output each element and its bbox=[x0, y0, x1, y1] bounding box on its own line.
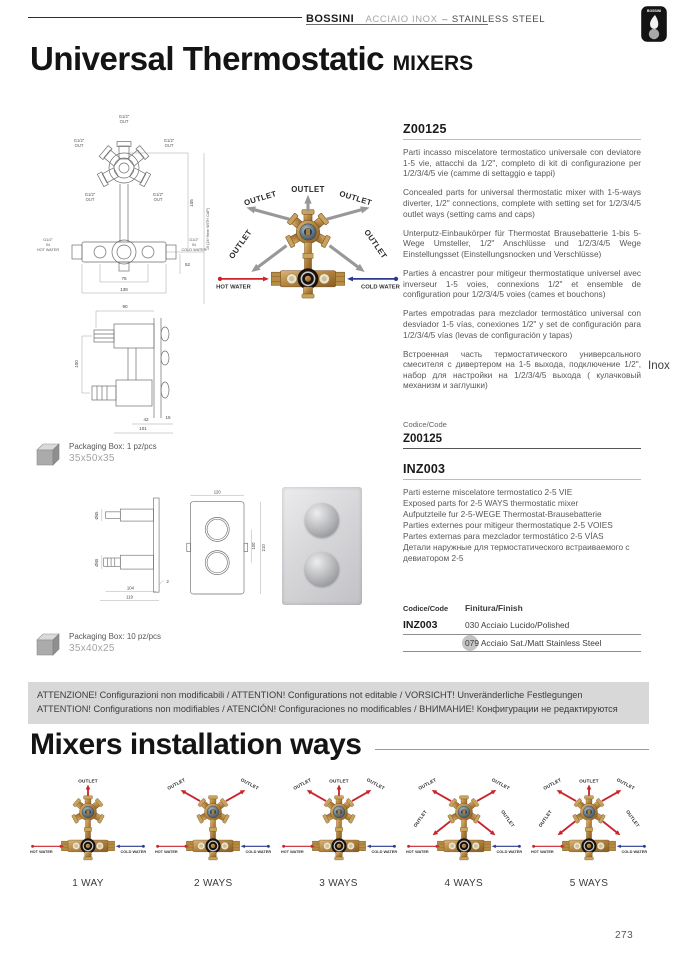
outlet-label: OUTLET bbox=[500, 809, 515, 828]
product-descriptions: Parti esterne miscelatore termostatico 2… bbox=[403, 487, 641, 564]
svg-text:Ø45: Ø45 bbox=[94, 511, 99, 520]
mixer-valve-figure: OUTLETHOT WATERCOLD WATER bbox=[28, 778, 148, 874]
thermostatic-valve-illustration bbox=[187, 796, 240, 860]
technical-drawing-z00125: G1/2" OUT G1/2" OUT G1/2" OUT G1/2" OUT … bbox=[32, 106, 217, 436]
finish-table-row: INZ003 030 Acciaio Lucido/Polished bbox=[403, 616, 641, 635]
svg-text:COLD WATER: COLD WATER bbox=[182, 248, 207, 252]
description-line: Partes externas para mezclador termostát… bbox=[403, 531, 641, 542]
packaging-box-icon bbox=[35, 630, 61, 656]
mixer-valve-figure: OUTLETOUTLETOUTLETOUTLETOUTLETHOT WATERC… bbox=[529, 778, 649, 874]
outlet-label: OUTLET bbox=[329, 779, 349, 784]
code-value: Z00125 bbox=[403, 433, 641, 449]
description-line: Exposed parts for 2-5 WAYS thermostatic … bbox=[403, 498, 641, 509]
installation-title: Mixers installation ways bbox=[30, 728, 361, 762]
installation-ways-row: OUTLETHOT WATERCOLD WATER1 WAYOUTLETOUTL… bbox=[28, 778, 649, 889]
outlet-label: OUTLET bbox=[227, 228, 254, 261]
outlet-label: OUTLET bbox=[78, 779, 98, 784]
svg-text:76: 76 bbox=[121, 276, 127, 281]
outlet-label: OUTLET bbox=[491, 778, 511, 791]
finish-row-finish: 030 Acciaio Lucido/Polished bbox=[465, 620, 641, 630]
product-inz003-section: INZ003 Parti esterne miscelatore termost… bbox=[403, 462, 641, 564]
way-label: 1 WAY bbox=[28, 878, 148, 889]
attention-banner: ATTENZIONE! Configurazioni non modificab… bbox=[28, 682, 649, 724]
packaging-box-icon bbox=[35, 440, 61, 466]
packaging-label: Packaging Box: 1 pz/pcs bbox=[69, 440, 157, 453]
svg-text:105: 105 bbox=[189, 199, 194, 207]
product-photo-inz003 bbox=[282, 487, 362, 605]
attention-line-1: ATTENZIONE! Configurazioni non modificab… bbox=[37, 689, 640, 703]
packaging-size: 35x50x35 bbox=[69, 453, 157, 464]
svg-text:2: 2 bbox=[166, 579, 169, 584]
thermostatic-valve-illustration bbox=[562, 796, 615, 860]
code-header: Codice/Code bbox=[403, 604, 465, 613]
svg-text:42: 42 bbox=[143, 417, 149, 422]
product-descriptions: Parti incasso miscelatore termostatico u… bbox=[403, 147, 641, 391]
svg-text:HOT WATER: HOT WATER bbox=[37, 248, 60, 252]
code-label: Codice/Code bbox=[403, 420, 641, 429]
outlet-label: OUTLET bbox=[625, 809, 640, 828]
outlet-diagram: OUTLETOUTLETOUTLETOUTLETOUTLETHOT WATERC… bbox=[210, 186, 406, 362]
svg-text:210: 210 bbox=[261, 544, 266, 552]
outlet-label: OUTLET bbox=[291, 186, 325, 194]
finish-table-header: Codice/Code Finitura/Finish bbox=[403, 600, 641, 616]
cold-water-label: COLD WATER bbox=[246, 849, 272, 854]
installation-way: OUTLETHOT WATERCOLD WATER1 WAY bbox=[28, 778, 148, 889]
packaging-label: Packaging Box: 10 pz/pcs bbox=[69, 630, 161, 643]
outlet-label: OUTLET bbox=[240, 778, 260, 791]
outlet-label: OUTLET bbox=[243, 189, 278, 207]
section-side-label: Inox bbox=[648, 360, 670, 372]
front-view-drawing bbox=[72, 142, 176, 272]
finish-row-code: INZ003 bbox=[403, 619, 465, 631]
hot-water-label: HOT WATER bbox=[531, 849, 554, 854]
installation-way: OUTLETOUTLETOUTLETHOT WATERCOLD WATER3 W… bbox=[279, 778, 399, 889]
thermostatic-valve-illustration bbox=[437, 796, 490, 860]
attention-line-2: ATTENTION! Configurations non modifiable… bbox=[37, 703, 640, 717]
svg-text:52: 52 bbox=[185, 262, 191, 267]
description-line: Детали наружные для термостатического вс… bbox=[403, 542, 641, 564]
svg-text:OUT: OUT bbox=[154, 197, 163, 202]
svg-text:120: 120 bbox=[214, 489, 222, 494]
hot-water-label: HOT WATER bbox=[280, 849, 303, 854]
hot-water-label: HOT WATER bbox=[155, 849, 178, 854]
title-rule bbox=[375, 749, 649, 750]
description-paragraph: Concealed parts for universal thermostat… bbox=[403, 187, 641, 219]
svg-text:15: 15 bbox=[165, 415, 171, 420]
finish-row-finish: 079 Acciaio Sat./Matt Stainless Steel bbox=[465, 638, 601, 648]
diverter-knob bbox=[305, 503, 339, 537]
outlet-label: OUTLET bbox=[365, 778, 385, 791]
header-rule bbox=[28, 17, 302, 18]
product-code-heading: Z00125 bbox=[403, 122, 641, 140]
finish-header: Finitura/Finish bbox=[465, 603, 641, 613]
product-code-heading: INZ003 bbox=[403, 462, 641, 480]
outlet-label: OUTLET bbox=[362, 228, 389, 261]
cold-water-label: COLD WATER bbox=[361, 285, 401, 291]
installation-title-row: Mixers installation ways bbox=[30, 728, 649, 762]
installation-way: OUTLETOUTLETHOT WATERCOLD WATER2 WAYS bbox=[153, 778, 273, 889]
thermostatic-valve-illustration bbox=[271, 210, 344, 298]
svg-text:G1/2": G1/2" bbox=[43, 238, 53, 242]
way-label: 4 WAYS bbox=[404, 878, 524, 889]
outlet-label: OUTLET bbox=[417, 778, 437, 791]
description-line: Parties externes pour mitigeur thermosta… bbox=[403, 520, 641, 531]
svg-text:101: 101 bbox=[139, 426, 147, 431]
svg-text:OUT: OUT bbox=[75, 143, 84, 148]
installation-way: OUTLETOUTLETOUTLETOUTLETOUTLETHOT WATERC… bbox=[529, 778, 649, 889]
hot-water-label: HOT WATER bbox=[216, 285, 251, 291]
svg-text:OUT: OUT bbox=[120, 119, 129, 124]
outlet-label: OUTLET bbox=[338, 189, 373, 207]
svg-text:100: 100 bbox=[74, 360, 79, 368]
technical-drawing-inz003: Ø45 Ø45 2 104 119 120 100 210 bbox=[52, 482, 268, 610]
svg-text:IN: IN bbox=[46, 243, 50, 247]
outlet-label: OUTLET bbox=[538, 809, 553, 828]
logo-circle-shape bbox=[649, 29, 659, 39]
mixer-valve-figure: OUTLETOUTLETHOT WATERCOLD WATER bbox=[153, 778, 273, 874]
outlet-label: OUTLET bbox=[579, 779, 599, 784]
svg-text:100: 100 bbox=[251, 542, 256, 550]
svg-text:G1/2": G1/2" bbox=[189, 238, 199, 242]
mixer-valve-figure: OUTLETOUTLETOUTLETOUTLETHOT WATERCOLD WA… bbox=[404, 778, 524, 874]
svg-text:OUT: OUT bbox=[86, 197, 95, 202]
bossini-logo: BOSSINI bbox=[641, 6, 667, 47]
thermostatic-valve-illustration bbox=[312, 796, 365, 860]
page-title-suffix: MIXERS bbox=[393, 52, 474, 75]
bossini-logo-icon: BOSSINI bbox=[641, 6, 667, 42]
description-paragraph: Parti incasso miscelatore termostatico u… bbox=[403, 147, 641, 179]
hot-water-label: HOT WATER bbox=[406, 849, 429, 854]
svg-text:IN: IN bbox=[192, 243, 196, 247]
packaging-info-inz003: Packaging Box: 10 pz/pcs 35x40x25 bbox=[35, 630, 161, 656]
page-title: Universal Thermostatic MIXERS bbox=[30, 40, 473, 78]
outlet-label: OUTLET bbox=[616, 778, 636, 791]
installation-way: OUTLETOUTLETOUTLETOUTLETHOT WATERCOLD WA… bbox=[404, 778, 524, 889]
cold-water-label: COLD WATER bbox=[496, 849, 522, 854]
svg-text:104: 104 bbox=[127, 585, 135, 590]
cold-water-label: COLD WATER bbox=[621, 849, 647, 854]
cold-water-label: COLD WATER bbox=[371, 849, 397, 854]
dimension-lines-front bbox=[82, 153, 204, 304]
finish-table-row: 079 Acciaio Sat./Matt Stainless Steel bbox=[403, 635, 641, 652]
finish-table: Codice/Code Finitura/Finish INZ003 030 A… bbox=[403, 600, 641, 652]
page-title-main: Universal Thermostatic bbox=[30, 40, 384, 77]
description-line: Parti esterne miscelatore termostatico 2… bbox=[403, 487, 641, 498]
way-label: 2 WAYS bbox=[153, 878, 273, 889]
description-paragraph: Встроенная часть термостатического униве… bbox=[403, 349, 641, 391]
thermostatic-valve-illustration bbox=[61, 796, 114, 860]
description-paragraph: Parties à encastrer pour mitigeur thermo… bbox=[403, 268, 641, 300]
outlet-label: OUTLET bbox=[167, 778, 187, 791]
mixer-valve-figure: OUTLETOUTLETOUTLETHOT WATERCOLD WATER bbox=[279, 778, 399, 874]
packaging-info-z00125: Packaging Box: 1 pz/pcs 35x50x35 bbox=[35, 440, 157, 466]
code-block: Codice/Code Z00125 bbox=[403, 420, 641, 449]
outlet-label: OUTLET bbox=[412, 809, 427, 828]
hot-water-label: HOT WATER bbox=[30, 849, 53, 854]
outlet-label: OUTLET bbox=[542, 778, 562, 791]
page-number: 273 bbox=[615, 930, 633, 941]
header-underline bbox=[306, 24, 488, 25]
svg-text:Ø45: Ø45 bbox=[94, 558, 99, 567]
description-paragraph: Unterputz-Einbaukörper für Thermostat Br… bbox=[403, 228, 641, 260]
product-z00125-section: Z00125 Parti incasso miscelatore termost… bbox=[403, 122, 641, 400]
outlet-label: OUTLET bbox=[292, 778, 312, 791]
side-view-drawing bbox=[92, 318, 169, 418]
svg-text:90: 90 bbox=[122, 304, 128, 309]
description-line: Aufputzteile fur 2-5-WEGE Thermostat-Bra… bbox=[403, 509, 641, 520]
svg-text:OUT: OUT bbox=[165, 143, 174, 148]
logo-text: BOSSINI bbox=[647, 9, 661, 13]
way-label: 5 WAYS bbox=[529, 878, 649, 889]
svg-text:138: 138 bbox=[120, 287, 128, 292]
packaging-size: 35x40x25 bbox=[69, 643, 161, 654]
thermostat-knob bbox=[305, 552, 339, 586]
description-paragraph: Partes empotradas para mezclador termost… bbox=[403, 308, 641, 340]
svg-text:119: 119 bbox=[126, 595, 133, 600]
way-label: 3 WAYS bbox=[279, 878, 399, 889]
cold-water-label: COLD WATER bbox=[120, 849, 146, 854]
dimension-lines-side bbox=[82, 311, 173, 433]
catalog-page: BOSSINI ACCIAIO INOX – STAINLESS STEEL B… bbox=[0, 0, 677, 958]
